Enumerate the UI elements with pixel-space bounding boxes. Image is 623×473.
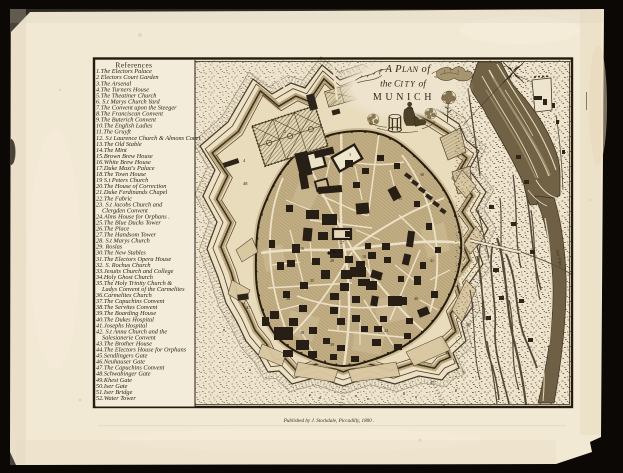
svg-text:1: 1 xyxy=(320,154,322,159)
svg-text:45: 45 xyxy=(430,380,435,385)
svg-text:2: 2 xyxy=(284,129,286,134)
svg-text:24: 24 xyxy=(384,328,388,333)
svg-text:41: 41 xyxy=(430,258,434,263)
svg-text:28: 28 xyxy=(330,258,334,263)
svg-text:36: 36 xyxy=(286,296,290,301)
svg-text:16: 16 xyxy=(300,246,304,251)
svg-text:12: 12 xyxy=(360,206,364,211)
svg-text:33: 33 xyxy=(352,296,356,301)
svg-text:34: 34 xyxy=(378,276,382,281)
svg-text:3: 3 xyxy=(349,152,351,157)
svg-text:35: 35 xyxy=(310,278,314,283)
svg-text:18: 18 xyxy=(362,254,366,259)
svg-text:30: 30 xyxy=(420,172,424,177)
svg-text:47: 47 xyxy=(246,305,251,310)
svg-text:39: 39 xyxy=(330,342,334,347)
svg-text:48: 48 xyxy=(243,181,248,186)
svg-text:40: 40 xyxy=(414,296,418,301)
svg-text:52.Water Tower: 52.Water Tower xyxy=(96,395,136,402)
svg-text:17: 17 xyxy=(340,240,344,245)
svg-text:31: 31 xyxy=(398,196,402,201)
svg-text:38: 38 xyxy=(300,330,304,335)
svg-text:Published by J. Stockdale, Pic: Published by J. Stockdale, Piccadilly, 1… xyxy=(283,418,375,424)
svg-text:19: 19 xyxy=(360,268,364,273)
svg-text:50: 50 xyxy=(466,322,471,327)
